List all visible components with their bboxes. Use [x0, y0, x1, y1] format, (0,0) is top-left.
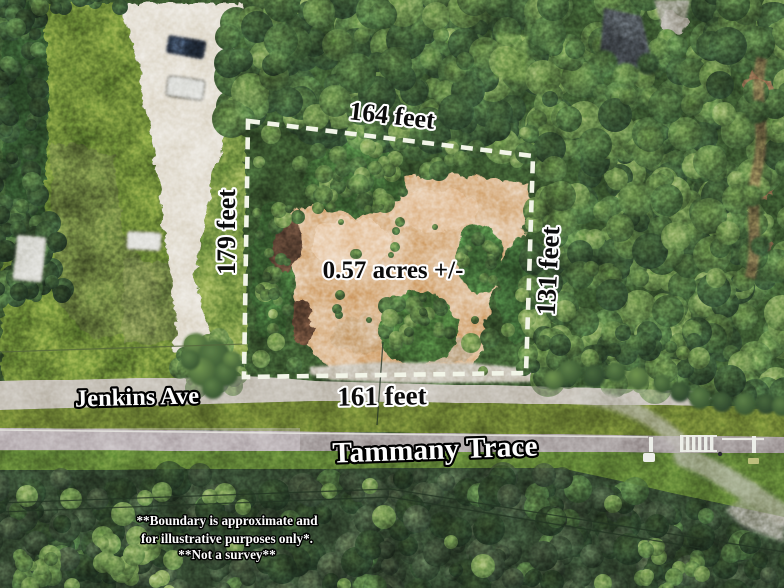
svg-text:131 feet: 131 feet [531, 226, 566, 317]
svg-text:**Boundary is approximate and: **Boundary is approximate and [136, 513, 318, 528]
svg-text:179 feet: 179 feet [212, 189, 241, 275]
svg-text:0.57 acres +/-: 0.57 acres +/- [323, 257, 464, 284]
svg-text:Jenkins Ave: Jenkins Ave [75, 382, 200, 412]
svg-text:**Not a survey**: **Not a survey** [178, 547, 276, 562]
svg-text:161 feet: 161 feet [337, 380, 427, 412]
svg-text:for illustrative purposes only: for illustrative purposes only*. [141, 531, 313, 546]
